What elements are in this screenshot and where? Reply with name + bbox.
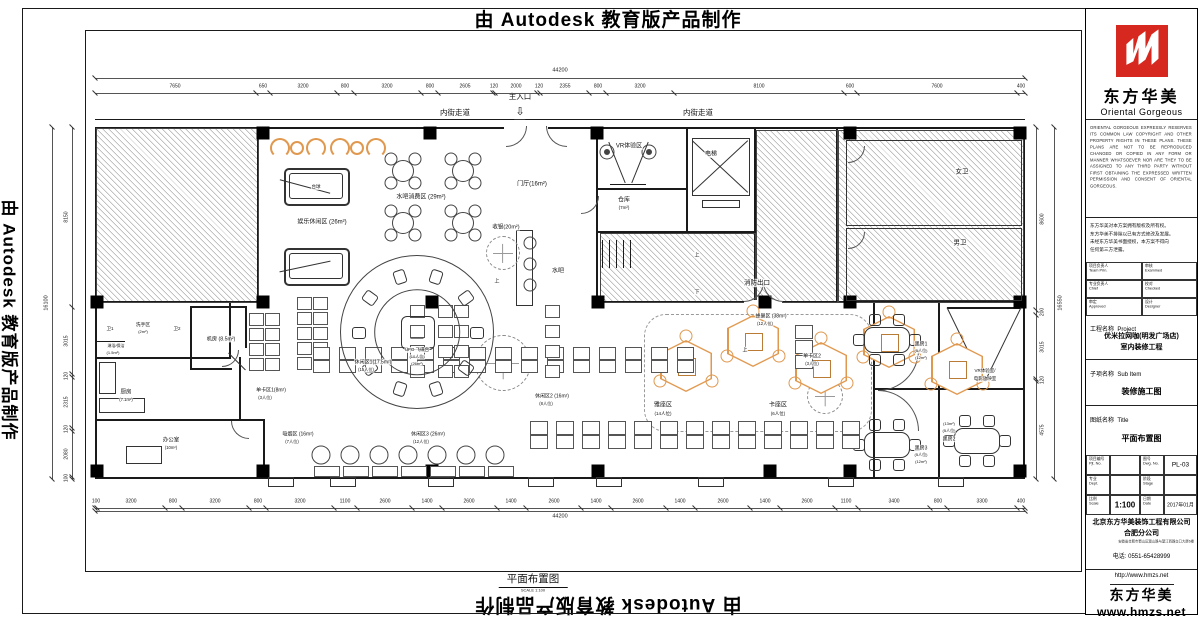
- structural-column: [257, 296, 270, 309]
- workstation-desk: [488, 466, 514, 477]
- room-label: (8人位): [539, 401, 553, 406]
- bar-stool: [524, 258, 537, 271]
- lounge-chair: [312, 446, 331, 465]
- dim-value: 2605: [460, 83, 471, 89]
- sofa-arc: [306, 138, 326, 158]
- workstation-desk: [249, 358, 264, 371]
- chair: [385, 205, 398, 218]
- wall: [245, 306, 247, 348]
- chair: [853, 334, 865, 346]
- workstation-desk: [712, 435, 730, 449]
- dim-value: 2600: [548, 498, 559, 504]
- dim-line: [95, 78, 1025, 79]
- room-label: ⇩: [514, 105, 525, 119]
- wall: [190, 306, 247, 308]
- subitem-name: 装修施工图: [1086, 386, 1197, 397]
- ufo-seat: [352, 327, 366, 339]
- workstation-desk: [530, 421, 548, 435]
- workstation-desk: [625, 360, 642, 373]
- structural-column: [257, 127, 270, 140]
- hex-pod-core: [949, 361, 967, 379]
- room-label: 卫1: [106, 326, 114, 332]
- vr-chair-dot: [604, 149, 610, 155]
- fixture-box: [702, 200, 740, 208]
- stamp-brand: 东方华美: [1110, 584, 1174, 605]
- role-cell: 项目负责人Team Prin.: [1086, 262, 1142, 280]
- room-label: (10m²): [164, 445, 177, 450]
- wall: [95, 477, 1025, 479]
- room-label: 台球: [311, 184, 321, 190]
- door-arc: [231, 421, 249, 439]
- copyright-en: ORIENTAL GORGEOUS EXPRESSLY RESERVES ITS…: [1090, 125, 1192, 189]
- workstation-desk: [608, 421, 626, 435]
- room-label: 办公室: [162, 436, 180, 443]
- workstation-desk: [625, 347, 642, 360]
- workstation-desk: [430, 466, 456, 477]
- room-label: 上: [494, 278, 500, 285]
- room-label: (13m²): [943, 421, 956, 426]
- dim-value: 120: [490, 83, 498, 89]
- dim-value: 1400: [675, 498, 686, 504]
- stamp-url: www.hmzs.net: [1086, 605, 1197, 619]
- wall: [610, 184, 646, 185]
- dim-value: 2355: [559, 83, 570, 89]
- chair: [385, 229, 398, 242]
- room-label: (7人位): [285, 439, 299, 444]
- workstation-desk: [738, 421, 756, 435]
- workstation-desk: [660, 421, 678, 435]
- footer-scale: SCALE 1:100: [516, 588, 550, 593]
- dim-value: 200: [1039, 308, 1045, 316]
- chair: [469, 205, 482, 218]
- dim-value: 3300: [976, 498, 987, 504]
- workstation-desk: [265, 358, 280, 371]
- structural-column: [844, 465, 857, 478]
- company-address: 安徽省合肥市蜀山区潜山路与望江西路交口大厦6楼: [1118, 539, 1165, 544]
- chair: [999, 435, 1011, 447]
- subitem-label: 子项名称 Sub Item: [1090, 372, 1141, 378]
- workstation-desk: [634, 421, 652, 435]
- dim-total: 16550: [1057, 295, 1063, 310]
- dim-value: 800: [594, 83, 602, 89]
- workstation-desk: [314, 466, 340, 477]
- pod-chair: [773, 350, 786, 363]
- room-label: (3人位): [258, 395, 272, 400]
- role-cell: 审核Examined: [1142, 262, 1198, 280]
- chair: [445, 177, 458, 190]
- fixture-box: [846, 228, 1022, 301]
- workstation-desk: [521, 360, 538, 373]
- door-arc: [546, 126, 567, 147]
- role-cell: 设计Designer: [1142, 298, 1198, 316]
- lounge-chair: [370, 446, 389, 465]
- structural-column: [592, 296, 605, 309]
- workstation-desk: [790, 435, 808, 449]
- wall: [190, 306, 192, 370]
- room-label: 水吧消费区 (29m²): [396, 193, 447, 201]
- room-label: 蜂巢区 (38m²): [755, 313, 787, 320]
- pod-chair: [951, 333, 964, 346]
- company-logo-icon: [1116, 25, 1168, 77]
- dim-total: 44200: [552, 513, 567, 519]
- workstation-desk: [372, 466, 398, 477]
- room-label: 内街走道: [682, 108, 714, 118]
- dim-value: 1100: [841, 498, 852, 504]
- lounge-chair: [341, 446, 360, 465]
- brand-cn: 东方华美: [1086, 83, 1197, 107]
- dim-value: 1400: [590, 498, 601, 504]
- structural-column: [1014, 465, 1027, 478]
- dim-value: 3015: [1039, 341, 1045, 352]
- pod-chair: [654, 375, 667, 388]
- chair: [869, 459, 881, 471]
- dim-value: 2600: [633, 498, 644, 504]
- room-label: (10人位): [409, 354, 425, 359]
- chair: [959, 415, 971, 427]
- room-label: (12人位): [413, 439, 430, 444]
- lounge-chair: [428, 446, 447, 465]
- dim-value: 2600: [464, 498, 475, 504]
- chair: [983, 415, 995, 427]
- structural-column: [424, 127, 437, 140]
- chair: [385, 177, 398, 190]
- vr-chair-dot: [646, 149, 652, 155]
- workstation-desk: [764, 435, 782, 449]
- workstation-desk: [582, 435, 600, 449]
- workstation-desk: [764, 421, 782, 435]
- workstation-desk: [556, 421, 574, 435]
- dim-value: 8100: [753, 83, 764, 89]
- room-label: 休闲区2 (16m²): [535, 393, 570, 400]
- dim-value: 3200: [382, 83, 393, 89]
- wall: [947, 307, 1021, 309]
- room-label: (14人位): [654, 411, 672, 417]
- dim-total: 16100: [43, 295, 49, 310]
- floor-plan: 内街走道主入口内街走道⇩娱乐休闲区 (26m²)台球水吧消费区 (29m²)门厅…: [0, 0, 1200, 621]
- room-label: 门厅(16m²): [517, 180, 548, 188]
- room-label: 收银(20m²): [492, 223, 520, 230]
- dim-value: 120: [534, 83, 542, 89]
- structural-column: [1014, 127, 1027, 140]
- workstation-desk: [842, 421, 860, 435]
- dim-value: 2000: [511, 83, 522, 89]
- chair: [385, 153, 398, 166]
- dim-line: [72, 127, 73, 479]
- room-label: 消防出口: [743, 279, 770, 287]
- workstation-desk: [265, 328, 280, 341]
- dim-value: 3015: [63, 335, 69, 346]
- workstation-desk: [459, 466, 485, 477]
- workstation-desk: [842, 435, 860, 449]
- chair: [445, 153, 458, 166]
- drawing-title-footer: 平面布置图 SCALE 1:100: [499, 571, 568, 597]
- workstation-desk: [677, 347, 694, 360]
- pool-table-bed: [289, 253, 343, 279]
- fixture-box: [846, 140, 1022, 226]
- workstation-desk: [582, 421, 600, 435]
- pod-chair: [857, 351, 870, 364]
- room-label: 黑房2: [942, 436, 956, 443]
- ufo-console: [401, 316, 435, 350]
- workstation-desk: [545, 345, 560, 358]
- workstation-desk: [401, 466, 427, 477]
- dim-value: 3200: [634, 83, 645, 89]
- dim-value: 400: [1017, 83, 1025, 89]
- dim-value: 3400: [888, 498, 899, 504]
- fixture-box: [99, 362, 116, 394]
- door-arc: [222, 350, 239, 367]
- room-label: (2m²): [138, 329, 148, 334]
- workstation-desk: [297, 357, 312, 370]
- workstation-desk: [343, 466, 369, 477]
- room-label: UFO 飞碟台: [404, 347, 429, 353]
- dim-value: 8150: [63, 212, 69, 223]
- dim-value: 800: [254, 498, 262, 504]
- date-value: 2017年01月: [1167, 502, 1194, 509]
- room-label: 机房 (8.5m²): [206, 336, 236, 343]
- bar-stool: [524, 279, 537, 292]
- drawing-sheet: 由 Autodesk 教育版产品制作 由 Autodesk 教育版产品制作 由 …: [0, 0, 1200, 621]
- chair: [893, 419, 905, 431]
- pod-chair: [680, 330, 693, 343]
- dim-value: 100: [63, 474, 69, 482]
- room-label: 吸烟区 (16m²): [282, 431, 314, 438]
- room-label: 厨房: [120, 388, 132, 395]
- role-cell: 专业负责人Chief: [1086, 280, 1142, 298]
- workstation-desk: [573, 360, 590, 373]
- pod-chair: [706, 375, 719, 388]
- workstation-desk: [816, 421, 834, 435]
- fixture-box: [938, 477, 964, 487]
- dim-value: 800: [341, 83, 349, 89]
- room-label: 男卫: [953, 239, 967, 247]
- chair: [869, 354, 881, 366]
- workstation-desk: [686, 421, 704, 435]
- room-label: 卫2: [173, 326, 181, 332]
- workstation-desk: [297, 342, 312, 355]
- structural-column: [592, 465, 605, 478]
- dim-value: 120: [1039, 376, 1045, 384]
- chair: [893, 354, 905, 366]
- logo: 东方华美 Oriental Gorgeous: [1086, 25, 1197, 125]
- room-label: 娱乐休闲区 (26m²): [297, 218, 348, 226]
- workstation-desk: [651, 347, 668, 360]
- workstation-desk: [545, 305, 560, 318]
- structural-column: [91, 465, 104, 478]
- room-label: 黑房1: [914, 341, 928, 348]
- title-block: 东方华美 Oriental Gorgeous ORIENTAL GORGEOUS…: [1085, 8, 1198, 615]
- fixture-box: [528, 477, 554, 487]
- dim-value: 120: [63, 371, 69, 379]
- room-label: 上: [694, 252, 700, 259]
- dim-value: 800: [425, 83, 433, 89]
- wall: [938, 303, 940, 477]
- dim-value: 650: [259, 83, 267, 89]
- workstation-desk: [297, 312, 312, 325]
- dim-value: 2600: [717, 498, 728, 504]
- dim-total: 44200: [552, 67, 567, 73]
- fixture-box: [596, 477, 622, 487]
- dim-line: [95, 508, 1025, 509]
- fixture-box: [828, 477, 854, 487]
- workstation-desk: [313, 297, 328, 310]
- workstation-desk: [249, 343, 264, 356]
- meeting-table: [864, 432, 910, 458]
- workstation-desk: [313, 360, 330, 373]
- chair: [445, 229, 458, 242]
- pod-chair: [815, 332, 828, 345]
- workstation-desk: [313, 347, 330, 360]
- sheet-name: 平面布置图: [1086, 433, 1197, 444]
- room-label: (7m²): [618, 205, 630, 211]
- dim-value: 2080: [63, 448, 69, 459]
- workstation-desk: [599, 360, 616, 373]
- chair: [409, 177, 422, 190]
- sofa-arc: [270, 138, 290, 158]
- dim-value: 2600: [379, 498, 390, 504]
- room-label: (12人位): [757, 321, 774, 326]
- room-label: (26m²): [411, 361, 424, 366]
- workstation-desk: [599, 347, 616, 360]
- room-label: 水吧: [551, 267, 564, 275]
- room-label: 女卫: [955, 168, 969, 176]
- project-name: 优米拉网咖(明发广场店) 室内装修工程: [1086, 331, 1197, 353]
- fixture-box: [126, 446, 162, 464]
- chair: [983, 455, 995, 467]
- dim-line: [52, 127, 53, 479]
- dim-value: 4575: [1039, 425, 1045, 436]
- workstation-desk: [265, 343, 280, 356]
- dim-value: 1400: [759, 498, 770, 504]
- chair: [469, 153, 482, 166]
- room-label: 黑房3: [914, 445, 928, 452]
- fixture-box: [428, 477, 454, 487]
- room-label: 雅座区: [653, 401, 672, 409]
- workstation-desk: [545, 325, 560, 338]
- room-label: (5人位): [942, 428, 956, 433]
- dim-line: [1036, 127, 1037, 479]
- workstation-desk: [660, 435, 678, 449]
- chair: [893, 314, 905, 326]
- workstation-desk: [249, 328, 264, 341]
- hatch-region: [756, 130, 838, 303]
- structural-column: [764, 465, 777, 478]
- chair: [893, 459, 905, 471]
- workstation-desk: [573, 347, 590, 360]
- chair: [445, 205, 458, 218]
- pod-chair: [789, 377, 802, 390]
- room-label: 仓库: [617, 196, 630, 204]
- room-label: VR体验室/: [974, 368, 996, 374]
- wall: [598, 188, 688, 190]
- lounge-chair: [486, 446, 505, 465]
- chair: [869, 314, 881, 326]
- workstation-desk: [556, 435, 574, 449]
- workstation-desk: [608, 435, 626, 449]
- room-label: 上: [742, 347, 748, 354]
- sheet-label: 图纸名称 Title: [1090, 418, 1128, 424]
- dim-value: 600: [846, 83, 854, 89]
- workstation-desk: [686, 435, 704, 449]
- chair: [869, 419, 881, 431]
- room-label: 淋浴/保洁: [107, 343, 125, 348]
- dim-line: [95, 511, 1025, 512]
- workstation-desk: [249, 313, 264, 326]
- dim-value: 100: [92, 498, 100, 504]
- room-label: 休闲区3 (26m²): [411, 431, 446, 438]
- workstation-desk: [521, 347, 538, 360]
- structural-column: [844, 127, 857, 140]
- chair: [409, 205, 422, 218]
- workstation-desk: [495, 360, 512, 373]
- wall: [686, 127, 688, 231]
- dim-line: [1054, 127, 1055, 479]
- workstation-desk: [634, 435, 652, 449]
- workstation-desk: [495, 347, 512, 360]
- company-url: http://www.hmzs.net: [1086, 573, 1197, 579]
- drawing-number: PL-03: [1172, 462, 1189, 469]
- dim-value: 800: [934, 498, 942, 504]
- ufo-seat: [470, 327, 484, 339]
- chair: [409, 229, 422, 242]
- workstation-desk: [795, 325, 813, 339]
- wall: [190, 368, 232, 370]
- dim-value: 120: [63, 425, 69, 433]
- room-label: 下: [694, 289, 700, 296]
- dim-line: [95, 93, 1025, 94]
- structural-column: [91, 296, 104, 309]
- room-label: (5人位): [914, 348, 928, 353]
- company-phone: 电话: 0551-65428999: [1086, 551, 1197, 560]
- company-name: 北京东方华美装饰工程有限公司 合肥分公司: [1086, 518, 1197, 539]
- structural-column: [591, 127, 604, 140]
- lounge-chair: [457, 446, 476, 465]
- role-cell: 校对Checked: [1142, 280, 1198, 298]
- role-cell: 审定Approved: [1086, 298, 1142, 316]
- dim-value: 400: [1017, 498, 1025, 504]
- sofa-table: [350, 141, 364, 155]
- dim-value: 2315: [63, 397, 69, 408]
- dim-value: 2600: [802, 498, 813, 504]
- sofa-arc: [330, 138, 350, 158]
- room-label: 单卡区1(8m²): [256, 387, 287, 394]
- wall: [95, 341, 125, 342]
- fields-table: 项目编号Pjt. No. 图号Dwg. No. PL-03 专业Dept. 阶段…: [1086, 455, 1197, 515]
- room-label: 卡座区: [768, 401, 787, 409]
- room-label: 内街走道: [439, 108, 471, 118]
- structural-column: [257, 465, 270, 478]
- copyright-cn: 东方华美对本方案拥有版权及所有权。 东方华美不排除以已有方式修改及发展。 未经东…: [1090, 222, 1193, 254]
- workstation-desk: [313, 312, 328, 325]
- dim-value: 8600: [1039, 213, 1045, 224]
- dim-value: 3200: [294, 498, 305, 504]
- brand-en: Oriental Gorgeous: [1086, 107, 1197, 117]
- room-label: (3人位): [805, 361, 819, 366]
- meeting-table: [864, 327, 910, 353]
- chair: [469, 229, 482, 242]
- room-label: (12m²): [915, 355, 928, 360]
- dim-value: 3200: [210, 498, 221, 504]
- pod-chair: [925, 378, 938, 391]
- workstation-desk: [313, 327, 328, 340]
- room-label: (7.1m²): [119, 397, 133, 402]
- pod-chair: [841, 377, 854, 390]
- chair: [959, 455, 971, 467]
- room-label: (12m²): [915, 459, 928, 464]
- workstation-desk: [651, 360, 668, 373]
- room-label: 电梯: [704, 150, 717, 158]
- dim-value: 3200: [125, 498, 136, 504]
